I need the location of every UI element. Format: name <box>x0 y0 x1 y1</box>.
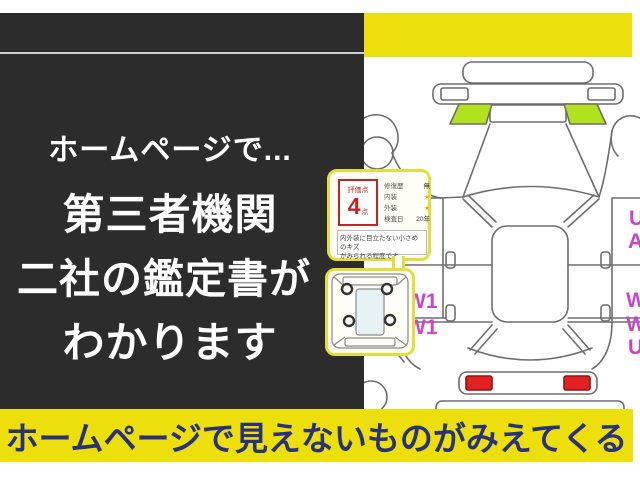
damage-code-u-right-bottom: U <box>628 336 640 360</box>
highlight-mark-right <box>564 104 606 124</box>
headline-line-4: わかります <box>0 309 340 370</box>
spec-value: ★ <box>424 192 430 203</box>
spec-value: 20年 <box>416 214 430 225</box>
spec-value: 無 <box>424 181 431 192</box>
banner-text: ホームページで見えないものがみえてくる <box>5 412 627 460</box>
spec-label: 外装 <box>384 203 397 214</box>
taillight-right <box>564 376 590 390</box>
note-line-2: がみられる程度です。 <box>340 252 424 261</box>
highlight-mark-left <box>450 104 492 124</box>
wheel-arch-left <box>361 137 393 169</box>
note-line-1: 内外装に目立たない小さめのキズ <box>340 234 424 252</box>
score-value: 4 <box>348 195 361 218</box>
condition-note: 内外装に目立たない小さめのキズ がみられる程度です。 <box>337 230 427 255</box>
taillight-left <box>466 376 492 390</box>
damage-code-w-right-bottom: W <box>626 313 640 337</box>
cabin-roof <box>492 226 568 322</box>
headline-line-1: ホームページで... <box>0 125 340 169</box>
top-yellow-bar <box>364 13 632 57</box>
bottom-banner: ホームページで見えないものがみえてくる <box>0 409 633 462</box>
front-bumper <box>463 62 593 83</box>
headlight-right <box>588 88 615 100</box>
spec-value: ★ <box>424 203 430 214</box>
interior-point <box>342 284 352 294</box>
headlight-left <box>441 88 468 100</box>
spec-label: 検査日 <box>384 214 404 225</box>
interior-diagram <box>328 271 412 353</box>
trunk-lid <box>436 401 624 409</box>
left-headline-panel: ホームページで... 第三者機関 二社の鑑定書が わかります <box>0 13 364 409</box>
headline-line-2: 第三者機関 <box>0 181 340 242</box>
spec-rows: 修復歴 無 内装 ★ 外装 ★ 検査日 20年 <box>384 181 430 225</box>
spec-label: 内装 <box>384 192 397 203</box>
damage-code-a: A <box>628 230 640 254</box>
interior-point <box>385 315 395 325</box>
evaluation-score-card: 評価点 4 点 修復歴 無 内装 ★ 外装 ★ 検査日 20年 内外装に目立たな… <box>327 169 431 261</box>
damage-code-w-right-top: W <box>626 289 640 313</box>
front-panel <box>433 84 623 104</box>
score-box: 評価点 4 点 <box>338 179 378 226</box>
headline-line-3: 二社の鑑定書が <box>0 245 334 305</box>
spec-label: 修復歴 <box>384 181 404 192</box>
divider-line <box>0 52 364 54</box>
interior-point <box>382 284 392 294</box>
interior-view-card <box>325 268 415 356</box>
damage-code-u-top: U <box>629 207 640 231</box>
interior-point <box>344 316 354 326</box>
score-unit: 点 <box>361 207 368 217</box>
door-handle <box>446 305 455 321</box>
